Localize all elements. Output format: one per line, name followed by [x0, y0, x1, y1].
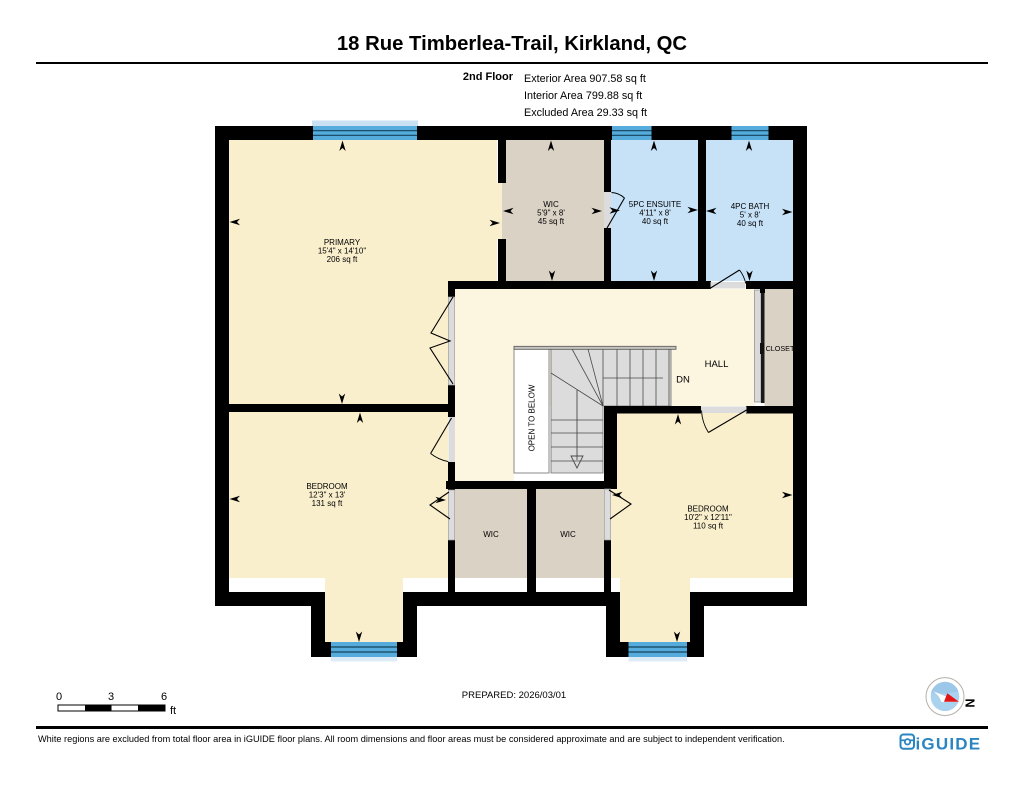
svg-text:HALL: HALL [705, 359, 729, 370]
svg-text:206 sq ft: 206 sq ft [327, 255, 358, 264]
svg-text:CLOSET: CLOSET [766, 344, 795, 353]
svg-text:3: 3 [108, 691, 114, 703]
svg-text:40 sq ft: 40 sq ft [642, 217, 669, 226]
svg-text:N: N [963, 698, 977, 707]
svg-text:40 sq ft: 40 sq ft [737, 219, 764, 228]
svg-text:6: 6 [161, 691, 167, 703]
svg-text:WIC: WIC [483, 530, 499, 539]
svg-text:WIC: WIC [560, 530, 576, 539]
svg-text:110 sq ft: 110 sq ft [693, 522, 724, 531]
svg-text:OPEN TO BELOW: OPEN TO BELOW [528, 384, 537, 451]
svg-text:DN: DN [676, 375, 690, 386]
svg-text:45 sq ft: 45 sq ft [538, 217, 565, 226]
svg-text:131 sq ft: 131 sq ft [312, 499, 343, 508]
svg-text:iGUIDE: iGUIDE [916, 734, 982, 753]
svg-text:0: 0 [56, 691, 62, 703]
svg-text:ft: ft [170, 705, 176, 717]
